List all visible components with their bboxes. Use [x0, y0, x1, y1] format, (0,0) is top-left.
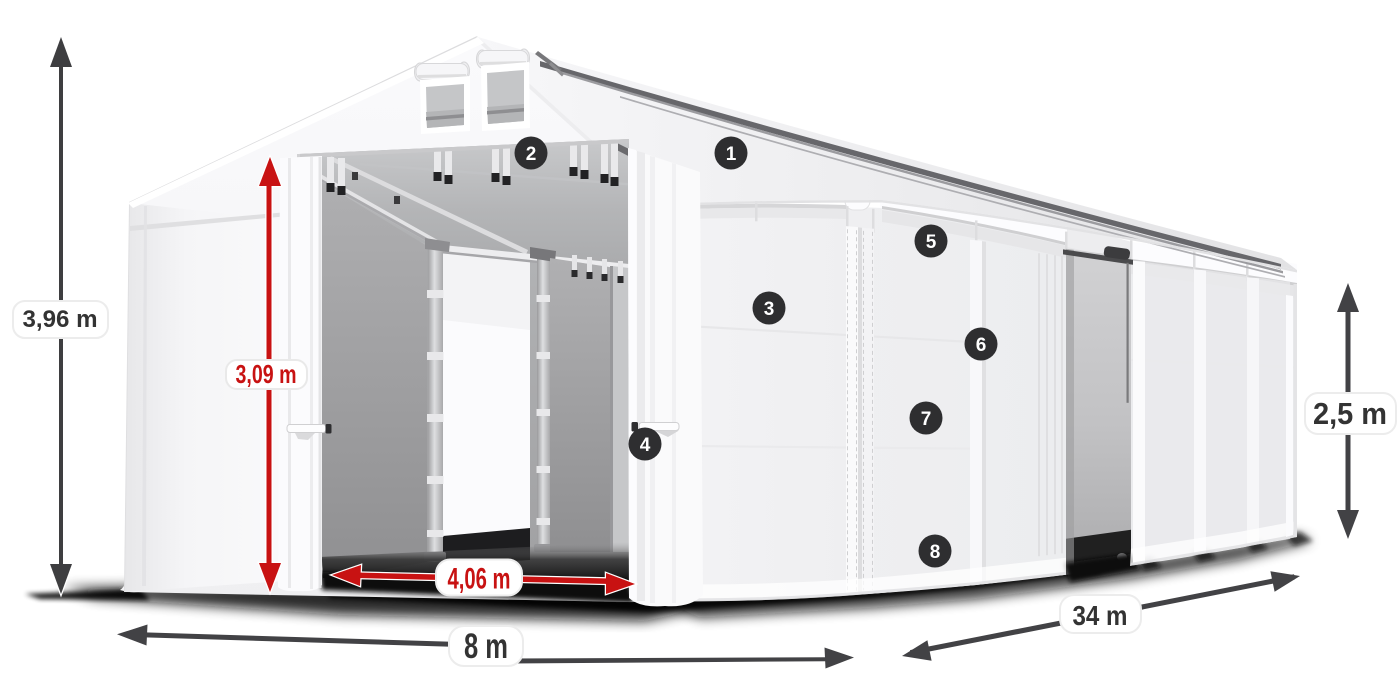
svg-text:6: 6 — [976, 335, 987, 356]
svg-text:8 m: 8 m — [464, 627, 508, 666]
svg-text:7: 7 — [921, 409, 932, 430]
svg-text:8: 8 — [930, 542, 941, 563]
svg-text:3,96 m: 3,96 m — [23, 306, 98, 333]
svg-text:5: 5 — [926, 232, 937, 253]
svg-text:3: 3 — [764, 299, 775, 320]
svg-text:2: 2 — [526, 144, 537, 165]
svg-text:34 m: 34 m — [1073, 600, 1128, 631]
svg-text:4: 4 — [640, 435, 651, 456]
svg-text:2,5 m: 2,5 m — [1313, 396, 1387, 431]
svg-text:4,06 m: 4,06 m — [448, 563, 511, 596]
svg-text:3,09 m: 3,09 m — [236, 359, 297, 389]
svg-text:1: 1 — [726, 144, 737, 165]
